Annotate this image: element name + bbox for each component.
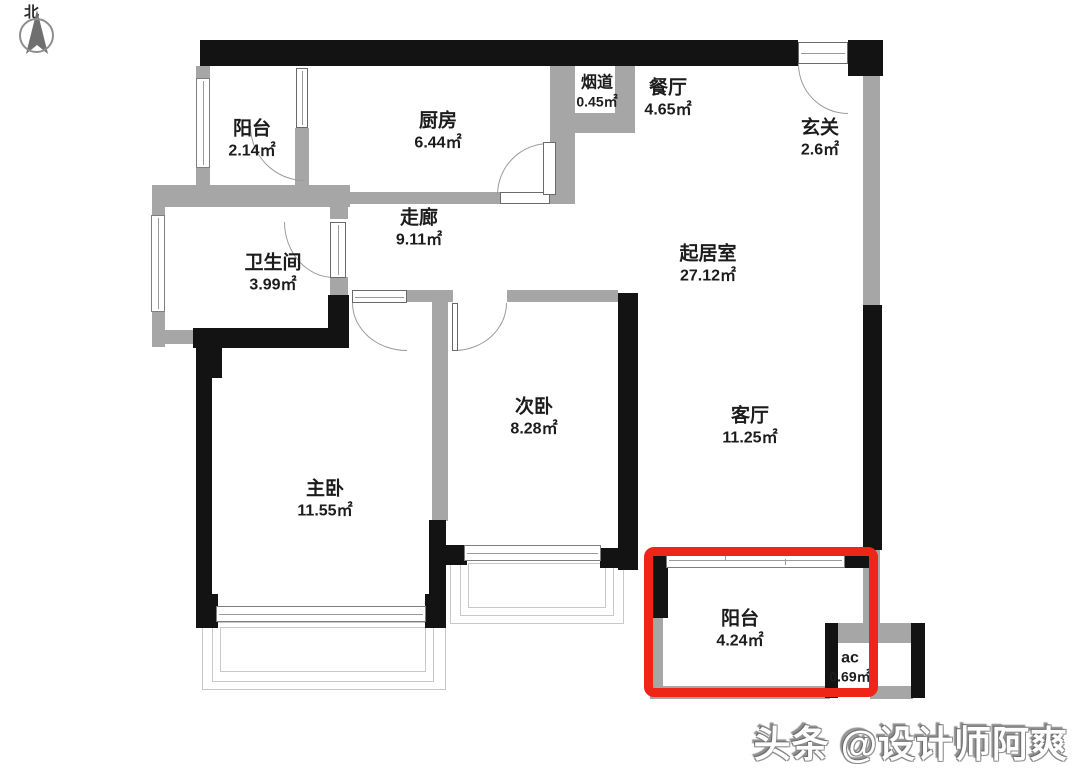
window-pane-line — [219, 614, 423, 615]
wall-exterior-right-upper — [863, 66, 880, 306]
room-label-balcony-top: 阳台2.14㎡ — [228, 118, 275, 161]
wall-master-bottom-left-corner — [196, 594, 218, 628]
compass: 北 — [6, 0, 66, 66]
kitchen-door-leaf — [543, 142, 556, 195]
room-label-living-room: 客厅11.25㎡ — [722, 405, 777, 448]
room-label-bedroom2: 次卧8.28㎡ — [510, 396, 557, 439]
wall-ac-right — [911, 623, 925, 698]
wall-exterior-top — [200, 40, 798, 66]
door-leaf-line — [302, 71, 303, 125]
room-label-living-area: 起居室27.12㎡ — [679, 243, 736, 286]
window-pane-line — [467, 553, 598, 554]
highlight-rectangle — [644, 547, 878, 697]
wall-bedroom-divider-lower — [429, 520, 446, 628]
wall-corridor-bottom-b — [507, 290, 618, 302]
room-label-flue: 烟道0.45㎡ — [576, 74, 617, 111]
bay-window-master-inner — [220, 627, 426, 672]
wall-exterior-top-right-corner — [848, 40, 883, 76]
wall-master-left-top — [196, 332, 222, 378]
window-bathroom-left — [151, 215, 165, 312]
window-pane-line — [203, 81, 204, 165]
master-bedroom-door-swing-arc — [352, 303, 407, 351]
wall-bedroom2-bottom-right — [600, 548, 638, 568]
door-leaf-line — [338, 225, 339, 275]
bay-window-bedroom2-inner — [468, 563, 606, 608]
watermark: 头条 @设计师阿爽 — [754, 714, 1068, 768]
room-label-master-bedroom: 主卧11.55㎡ — [297, 478, 352, 521]
bedroom2-door-swing-arc — [454, 303, 507, 351]
window-balcony1-left — [196, 78, 210, 168]
room-label-dining: 餐厅4.65㎡ — [644, 77, 691, 120]
room-label-bathroom: 卫生间3.99㎡ — [244, 252, 301, 295]
room-label-entry: 玄关2.6㎡ — [801, 117, 839, 160]
window-master-bay — [216, 606, 426, 622]
wall-bedroom2-right — [618, 293, 638, 570]
wall-bedroom-divider — [432, 301, 448, 521]
wall-flue-right — [615, 62, 635, 133]
master-bedroom-door-leaf — [352, 290, 407, 303]
bathroom-door-leaf — [330, 222, 346, 278]
kitchen-door-swing-arc — [497, 143, 549, 195]
wall-exterior-right-lower — [863, 305, 882, 550]
balcony1-door-leaf — [296, 68, 308, 128]
wall-bathroom-right-top-stub — [330, 207, 348, 219]
door-leaf-line — [355, 297, 404, 298]
window-pane-line — [158, 218, 159, 309]
room-label-kitchen: 厨房6.44㎡ — [414, 110, 461, 153]
wall-kitchen-bottom — [308, 192, 500, 204]
door-leaf-line — [801, 53, 845, 54]
floor-plan: 北 — [0, 0, 1080, 768]
window-bedroom2-bay — [464, 545, 601, 561]
entry-door-swing-arc — [798, 64, 848, 114]
bedroom2-door-leaf — [452, 303, 458, 351]
room-label-corridor: 走廊9.11㎡ — [396, 207, 442, 250]
compass-ring — [19, 18, 54, 53]
wall-master-left — [196, 378, 212, 628]
entry-door-leaf — [798, 42, 848, 64]
wall-bathroom-right-corner — [328, 295, 349, 348]
